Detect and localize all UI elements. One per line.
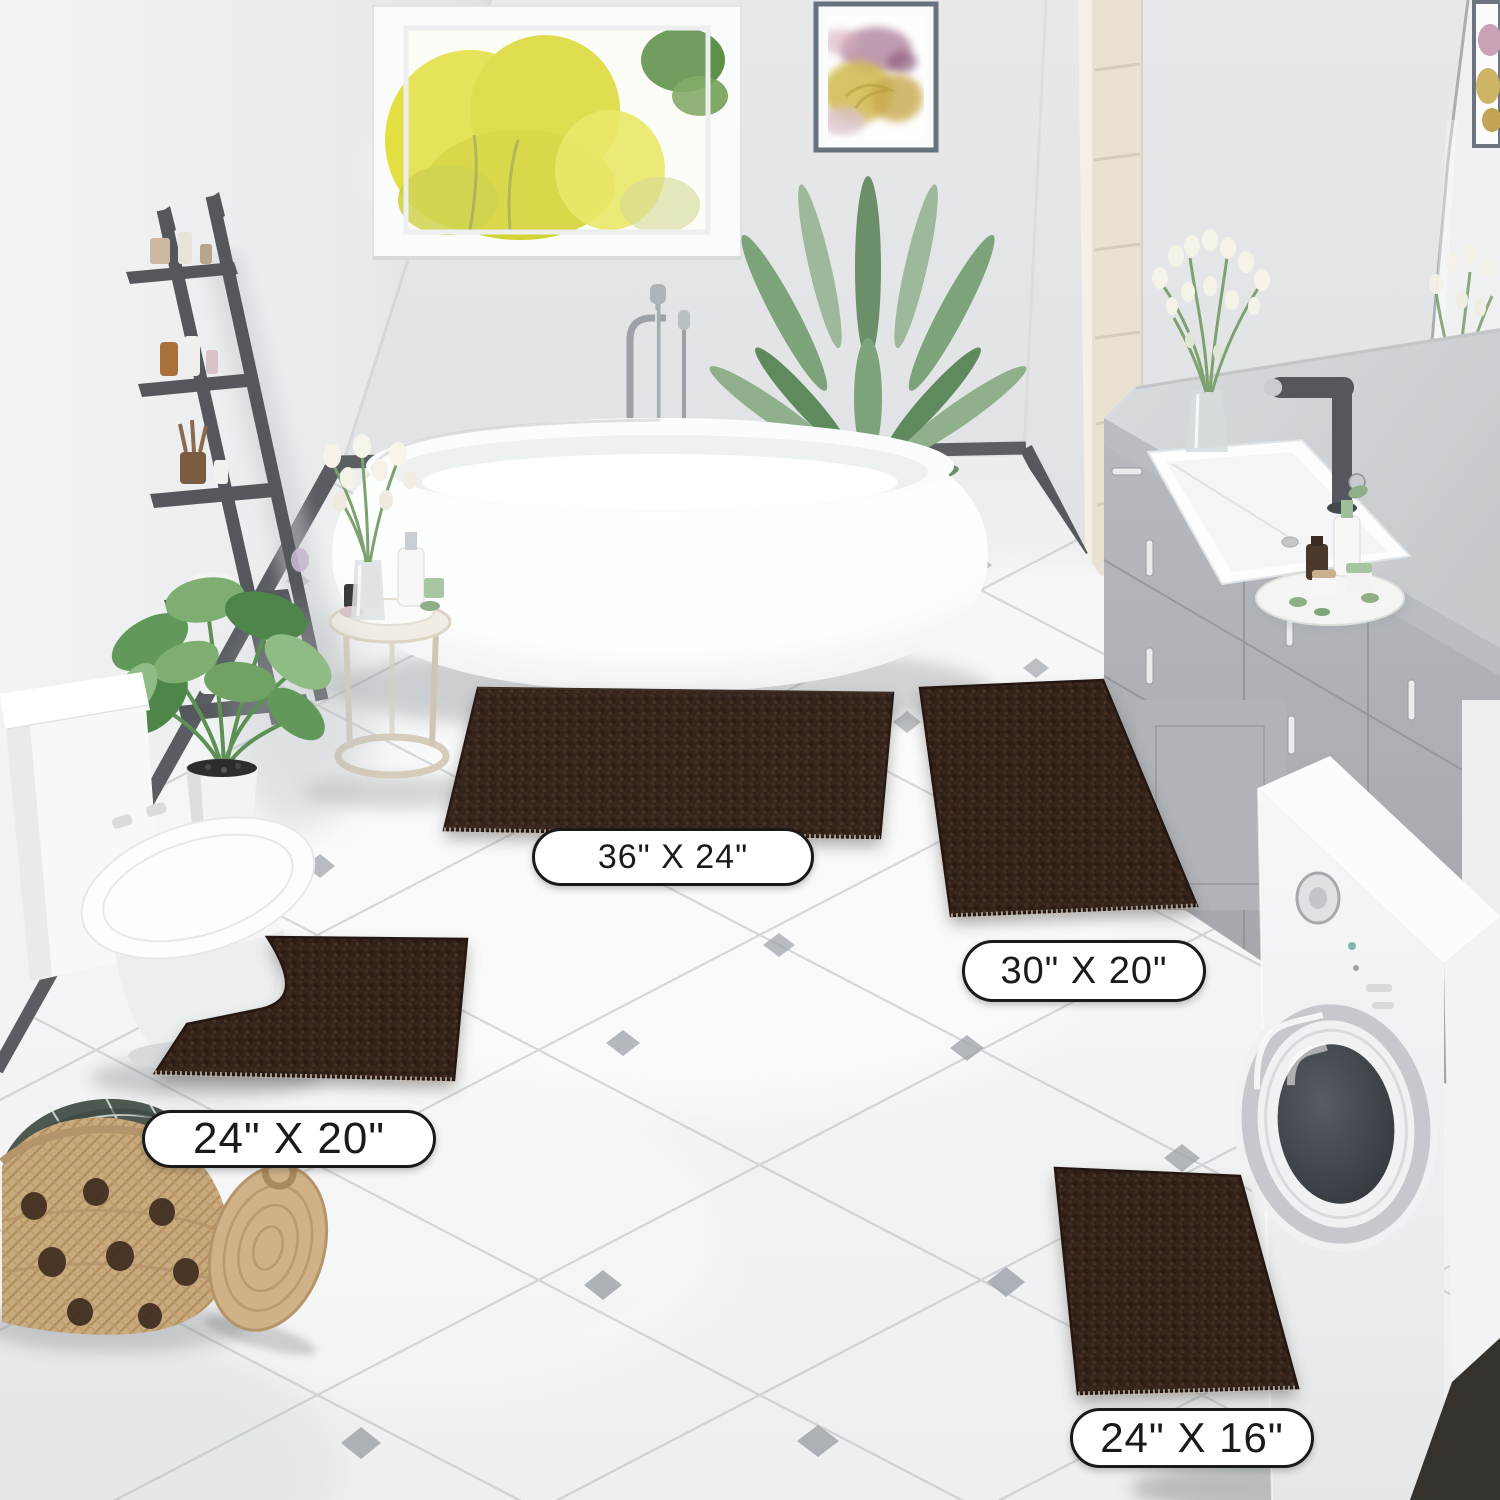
rug-36x24 xyxy=(444,688,893,846)
wall-art-frame xyxy=(816,4,936,150)
window-view-trees xyxy=(385,28,728,240)
bathroom-scene xyxy=(0,0,1500,1500)
bathtub xyxy=(330,418,990,732)
size-label-24x16: 24" X 16" xyxy=(1070,1408,1314,1468)
bathroom-product-photo: 36" X 24" 30" X 20" 24" X 20" 24" X 16" xyxy=(0,0,1500,1500)
wall-art-painting xyxy=(820,27,923,135)
mirror-art-reflection xyxy=(1474,2,1500,146)
window xyxy=(373,6,741,258)
size-label-30x20: 30" X 20" xyxy=(962,940,1206,1002)
size-label-24x20: 24" X 20" xyxy=(142,1110,436,1168)
size-label-36x24: 36" X 24" xyxy=(532,828,814,886)
